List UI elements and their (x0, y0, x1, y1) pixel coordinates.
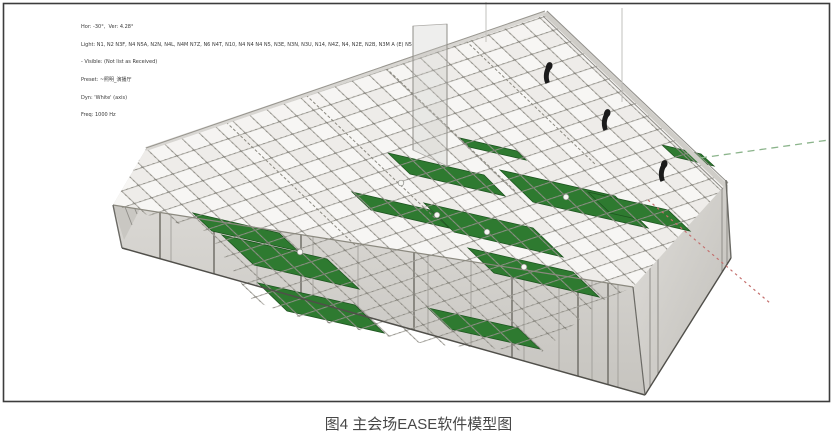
listener-marker (484, 229, 490, 235)
overlay-line-freq: Freq: 1000 Hz (81, 113, 412, 119)
listener-marker (563, 194, 569, 200)
overlay-line-visible: - Visible: (Not list as Received) (81, 60, 412, 66)
overlay-line-dyn: Dyn: 'White' (axis) (81, 96, 412, 102)
viewer-info-overlay: Hor: -30°, Ver: 4.28° Light: N1, N2 N3F,… (81, 13, 412, 131)
listener-marker (521, 264, 527, 270)
listener-marker (434, 212, 440, 218)
overlay-line-view-angles: Hor: -30°, Ver: 4.28° (81, 25, 412, 31)
overlay-line-light-list: Light: N1, N2 N3F, N4 N5A, N2N, N4L, N4M… (81, 43, 412, 49)
axis-y-green (700, 140, 829, 158)
figure-caption: 图4 主会场EASE软件模型图 (0, 413, 837, 434)
listener-marker (297, 249, 303, 255)
figure-container: Hor: -30°, Ver: 4.28° Light: N1, N2 N3F,… (0, 0, 837, 442)
listener-marker (398, 180, 404, 186)
overlay-line-preset: Preset: ~照明_演播厅 (81, 78, 412, 84)
